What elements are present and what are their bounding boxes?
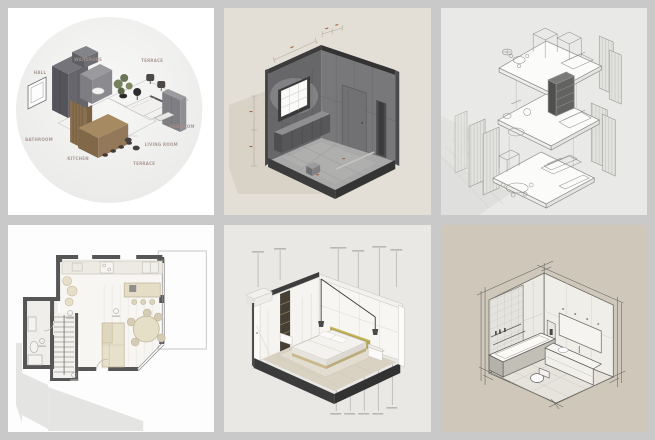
bedroom-cutaway-illustration [224,225,430,432]
room-label-bathroom: BATHROOM [25,137,53,142]
sofa [102,323,124,367]
room-label-terrace-top: TERRACE [141,58,163,63]
exploded-apartment-illustration: HALL WARDROBE TERRACE BEDROOM LIVING ROO… [8,8,214,215]
tile-bathroom-sketch[interactable] [441,225,647,432]
tile-exploded-levels[interactable] [441,8,647,215]
room-label-living-room: LIVING ROOM [145,142,178,147]
dark-room-illustration [224,8,430,215]
tile-dark-room[interactable] [224,8,430,215]
kitchen-counter [62,261,162,274]
level-1-plate [493,150,594,208]
room-label-hall: HALL [34,70,47,75]
exploded-levels-illustration [441,8,647,215]
tile-bedroom-cutaway[interactable] [224,225,430,432]
bathroom-sketch-illustration [441,225,647,432]
room-label-kitchen: KITCHEN [67,156,88,161]
image-grid: HALL WARDROBE TERRACE BEDROOM LIVING ROO… [0,0,655,440]
room-label-terrace-bottom: TERRACE [133,161,155,166]
wall-panels-right [591,36,621,176]
room-label-bedroom: BEDROOM [170,124,195,129]
bedroom-room [246,272,404,404]
terrace-outline [158,251,206,349]
floor-plan-illustration [8,225,214,432]
level-2-plate [498,72,599,150]
wall-niche [377,100,387,158]
door [343,85,367,156]
room-label-wardrobe: WARDROBE [74,57,102,62]
tile-floor-plan[interactable] [8,225,214,432]
tile-exploded-apartment[interactable]: HALL WARDROBE TERRACE BEDROOM LIVING ROO… [8,8,214,215]
